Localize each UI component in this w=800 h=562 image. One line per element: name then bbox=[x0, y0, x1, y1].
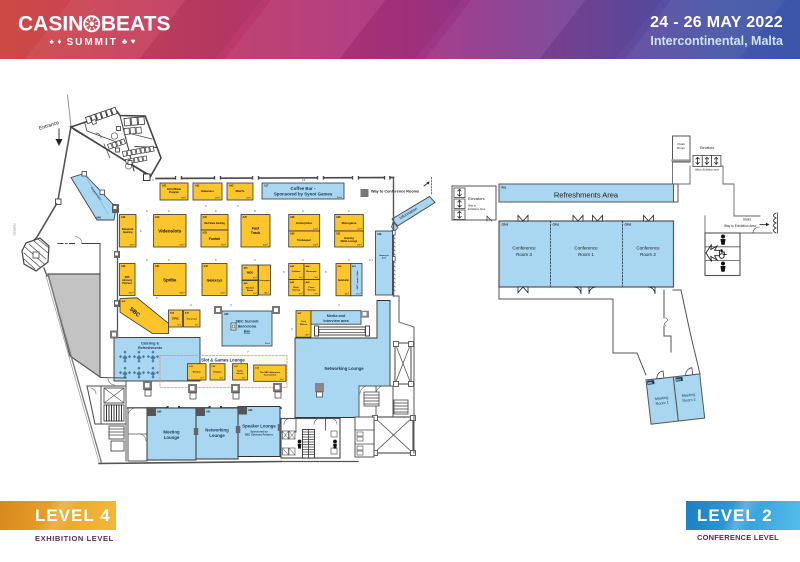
svg-text:iGaming: iGaming bbox=[123, 231, 133, 234]
svg-text:A42: A42 bbox=[204, 265, 209, 268]
svg-text:Wazdan: Wazdan bbox=[193, 372, 202, 374]
svg-text:A49: A49 bbox=[377, 233, 382, 236]
svg-text:3: 3 bbox=[190, 303, 192, 307]
svg-text:A40: A40 bbox=[121, 265, 126, 268]
svg-text:SBC Summit: SBC Summit bbox=[236, 320, 260, 324]
svg-text:Lionsgate: Lionsgate bbox=[259, 279, 270, 282]
svg-text:6: 6 bbox=[302, 209, 304, 213]
svg-text:3: 3 bbox=[254, 258, 256, 262]
svg-text:12m²: 12m² bbox=[356, 293, 361, 296]
svg-text:Media and: Media and bbox=[327, 314, 346, 318]
svg-text:Entrance: Entrance bbox=[38, 120, 60, 132]
svg-text:Games: Games bbox=[236, 373, 244, 375]
svg-text:9m²: 9m² bbox=[299, 276, 303, 279]
svg-text:9m²: 9m² bbox=[195, 324, 199, 327]
svg-text:Way to Conference Rooms: Way to Conference Rooms bbox=[371, 190, 419, 194]
svg-text:Elevators: Elevators bbox=[468, 196, 485, 201]
svg-text:A66: A66 bbox=[96, 216, 101, 220]
svg-text:A60: A60 bbox=[157, 411, 162, 414]
svg-text:Gaming: Gaming bbox=[308, 290, 316, 292]
svg-text:5: 5 bbox=[283, 270, 285, 274]
svg-text:9m²: 9m² bbox=[242, 377, 246, 380]
svg-text:Turbo: Turbo bbox=[237, 371, 244, 373]
svg-text:3: 3 bbox=[230, 303, 232, 307]
svg-text:A25: A25 bbox=[243, 216, 248, 219]
svg-text:Wilson: Wilson bbox=[300, 324, 308, 326]
svg-text:Room 2: Room 2 bbox=[640, 252, 656, 257]
svg-text:Bar: Bar bbox=[244, 330, 251, 334]
svg-text:Autobahn: Autobahn bbox=[338, 279, 350, 282]
svg-text:CR01: CR01 bbox=[553, 223, 560, 227]
svg-text:7: 7 bbox=[247, 350, 249, 354]
svg-text:9m²: 9m² bbox=[280, 378, 284, 381]
svg-text:36m²: 36m² bbox=[221, 244, 226, 247]
svg-text:3: 3 bbox=[338, 303, 340, 307]
svg-text:18m²: 18m² bbox=[246, 197, 251, 200]
svg-text:5: 5 bbox=[215, 258, 217, 262]
svg-text:8: 8 bbox=[254, 209, 256, 213]
svg-text:Meeting: Meeting bbox=[163, 430, 180, 435]
svg-text:Endorphina: Endorphina bbox=[296, 221, 312, 225]
svg-text:Red State Gaming: Red State Gaming bbox=[204, 222, 225, 225]
svg-text:Elevators: Elevators bbox=[700, 146, 714, 150]
svg-text:6: 6 bbox=[215, 209, 217, 213]
svg-text:3: 3 bbox=[152, 178, 154, 182]
svg-text:A41: A41 bbox=[155, 265, 160, 268]
svg-text:6: 6 bbox=[168, 209, 170, 213]
svg-text:A10: A10 bbox=[155, 216, 160, 219]
svg-text:9m²: 9m² bbox=[253, 292, 257, 295]
svg-text:A29: A29 bbox=[290, 233, 295, 236]
svg-text:Gaming: Gaming bbox=[292, 290, 300, 292]
svg-text:A03: A03 bbox=[229, 185, 234, 188]
svg-text:A53: A53 bbox=[224, 313, 229, 316]
svg-text:5: 5 bbox=[156, 296, 158, 300]
svg-text:6: 6 bbox=[146, 209, 148, 213]
svg-text:A23: A23 bbox=[203, 232, 208, 235]
svg-text:A02: A02 bbox=[195, 185, 200, 188]
svg-text:5: 5 bbox=[325, 270, 327, 274]
svg-text:Coffee Bar -: Coffee Bar - bbox=[291, 186, 316, 191]
svg-text:Room 1: Room 1 bbox=[578, 252, 594, 257]
svg-text:18m²: 18m² bbox=[181, 197, 186, 200]
svg-text:3: 3 bbox=[291, 327, 293, 331]
svg-text:Refreshments: Refreshments bbox=[138, 346, 162, 350]
svg-text:9m²: 9m² bbox=[178, 324, 182, 327]
svg-text:Networking Lounge: Networking Lounge bbox=[324, 366, 364, 371]
svg-text:A16: A16 bbox=[121, 216, 126, 219]
svg-text:36m²: 36m² bbox=[129, 292, 134, 295]
svg-text:Videoslots: Videoslots bbox=[158, 229, 182, 234]
svg-text:Barcelona: Barcelona bbox=[238, 325, 257, 329]
svg-text:46m²: 46m² bbox=[265, 342, 270, 345]
svg-text:9m²: 9m² bbox=[315, 276, 319, 279]
svg-text:A62: A62 bbox=[248, 409, 253, 412]
svg-text:18m²: 18m² bbox=[264, 292, 269, 295]
svg-text:18m²: 18m² bbox=[215, 197, 220, 200]
svg-text:Networking: Networking bbox=[205, 428, 229, 433]
svg-text:CR03: CR03 bbox=[502, 223, 509, 227]
svg-text:Speaker Lounge: Speaker Lounge bbox=[242, 424, 276, 429]
svg-text:Enigma: Enigma bbox=[214, 372, 223, 374]
svg-text:12m²: 12m² bbox=[357, 228, 362, 231]
svg-text:Exhibition Area: Exhibition Area bbox=[468, 207, 486, 211]
svg-text:18m²: 18m² bbox=[305, 334, 310, 337]
svg-text:R01: R01 bbox=[502, 186, 507, 190]
svg-text:Track: Track bbox=[251, 231, 260, 235]
svg-text:MaxTu: MaxTu bbox=[236, 189, 245, 193]
svg-text:Way to Exhibition Area: Way to Exhibition Area bbox=[724, 224, 756, 228]
svg-text:Funfair: Funfair bbox=[209, 237, 221, 241]
svg-text:Tonkeeper: Tonkeeper bbox=[297, 238, 312, 242]
svg-text:Habanero: Habanero bbox=[201, 189, 214, 193]
svg-text:9m²: 9m² bbox=[253, 277, 257, 280]
svg-text:CB/05/032: CB/05/032 bbox=[13, 223, 17, 236]
svg-text:5: 5 bbox=[205, 204, 207, 208]
svg-text:Galaxsys: Galaxsys bbox=[207, 279, 223, 283]
svg-text:Partners: Partners bbox=[122, 282, 132, 285]
svg-text:SBC Leaders Table: SBC Leaders Table bbox=[356, 270, 359, 290]
svg-text:Betmaster: Betmaster bbox=[306, 270, 316, 273]
svg-text:Sponsored by Synot Games: Sponsored by Synot Games bbox=[274, 192, 333, 197]
svg-text:A22: A22 bbox=[203, 216, 208, 219]
svg-text:3: 3 bbox=[348, 258, 350, 262]
svg-text:SBC Advisory Partners: SBC Advisory Partners bbox=[245, 433, 274, 437]
svg-text:Way to Exhibition area: Way to Exhibition area bbox=[695, 169, 719, 172]
svg-text:Interview area: Interview area bbox=[323, 319, 349, 323]
svg-text:Catering &: Catering & bbox=[141, 342, 160, 346]
svg-text:Conference: Conference bbox=[512, 246, 536, 251]
svg-text:A31: A31 bbox=[336, 233, 341, 236]
svg-text:36m²: 36m² bbox=[130, 244, 135, 247]
svg-text:Spribe: Spribe bbox=[163, 278, 177, 283]
svg-text:Stairs: Stairs bbox=[743, 218, 752, 222]
svg-text:Room 3: Room 3 bbox=[516, 252, 532, 257]
svg-text:5: 5 bbox=[237, 204, 239, 208]
svg-text:A28: A28 bbox=[290, 216, 295, 219]
svg-text:96m²: 96m² bbox=[180, 292, 185, 295]
svg-text:96m²: 96m² bbox=[180, 244, 185, 247]
svg-text:Program: Program bbox=[169, 191, 179, 194]
svg-text:Fast: Fast bbox=[252, 227, 260, 231]
svg-text:CR02: CR02 bbox=[625, 223, 632, 227]
svg-text:The SBC Adventure: The SBC Adventure bbox=[260, 371, 281, 374]
svg-text:18m²: 18m² bbox=[344, 293, 349, 296]
svg-text:Tomorrow: Tomorrow bbox=[186, 319, 197, 321]
svg-text:Lounge: Lounge bbox=[209, 433, 225, 438]
svg-text:45m²: 45m² bbox=[337, 196, 342, 199]
svg-text:84m²: 84m² bbox=[263, 244, 268, 247]
svg-text:5: 5 bbox=[168, 258, 170, 262]
svg-text:6: 6 bbox=[348, 209, 350, 213]
svg-text:Basta: Basta bbox=[247, 289, 254, 292]
svg-text:18m²: 18m² bbox=[313, 244, 318, 247]
svg-text:Luckbox: Luckbox bbox=[292, 271, 301, 273]
svg-text:Slot & Games Lounge: Slot & Games Lounge bbox=[201, 358, 245, 363]
svg-text:Conference: Conference bbox=[636, 246, 660, 251]
svg-text:9m²: 9m² bbox=[220, 377, 224, 380]
svg-text:EPIC: EPIC bbox=[172, 317, 179, 321]
svg-text:Refreshments Area: Refreshments Area bbox=[554, 191, 619, 200]
svg-text:Microgame: Microgame bbox=[342, 221, 357, 225]
svg-text:Room: Room bbox=[677, 146, 686, 150]
svg-text:9m²: 9m² bbox=[299, 293, 303, 296]
svg-text:12m²: 12m² bbox=[313, 228, 318, 231]
svg-text:5: 5 bbox=[146, 258, 148, 262]
svg-text:WIDO: WIDO bbox=[247, 272, 254, 275]
svg-text:Malta Lounge: Malta Lounge bbox=[341, 239, 358, 243]
svg-text:15: 15 bbox=[302, 178, 306, 182]
svg-text:A17: A17 bbox=[264, 185, 269, 188]
svg-text:18m²: 18m² bbox=[357, 244, 362, 247]
svg-text:Jetty: Jetty bbox=[301, 320, 307, 323]
svg-text:2 4: 2 4 bbox=[369, 258, 374, 262]
svg-text:9m²: 9m² bbox=[201, 377, 205, 380]
svg-text:Conference: Conference bbox=[574, 246, 598, 251]
svg-text:A30: A30 bbox=[336, 216, 341, 219]
svg-text:Tournament: Tournament bbox=[264, 374, 277, 377]
svg-text:Lounge: Lounge bbox=[164, 435, 180, 440]
svg-text:6: 6 bbox=[140, 229, 142, 233]
svg-text:60m²: 60m² bbox=[221, 292, 226, 295]
svg-text:A61: A61 bbox=[206, 411, 211, 414]
svg-text:3: 3 bbox=[302, 258, 304, 262]
svg-text:9m²: 9m² bbox=[315, 293, 319, 296]
